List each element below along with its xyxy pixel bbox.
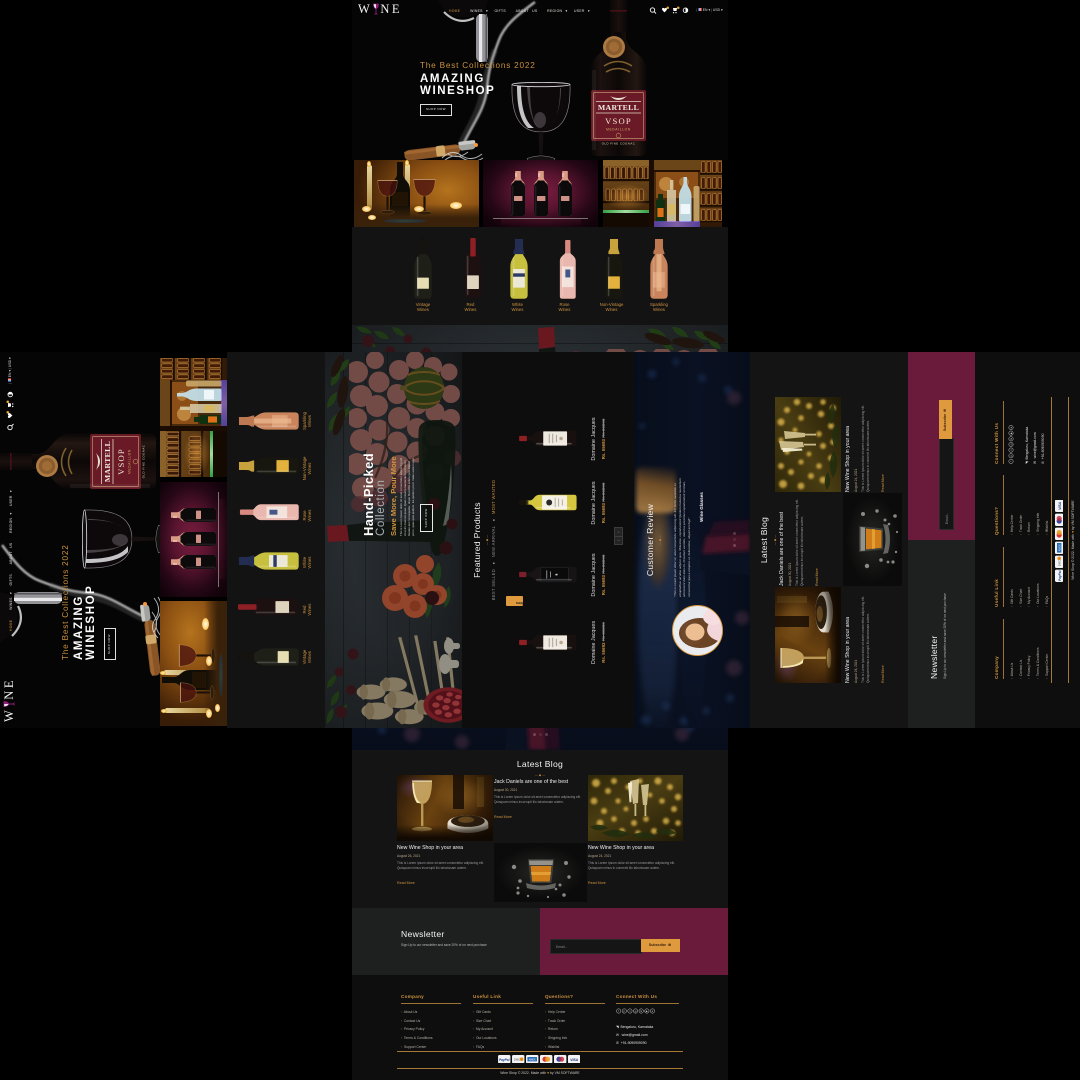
svg-text:G: G (1010, 438, 1013, 440)
svg-text:DISC: DISC (1058, 560, 1062, 566)
svg-text:MARTELL: MARTELL (598, 103, 639, 112)
svg-text:▶: ▶ (1010, 432, 1013, 434)
svg-text:◎: ◎ (634, 1010, 636, 1013)
svg-text:ʁ: ʁ (1010, 426, 1013, 428)
svg-text:AMEX: AMEX (529, 1058, 536, 1061)
svg-text:MEDAILLON: MEDAILLON (606, 128, 631, 132)
svg-text:PayPal: PayPal (499, 1058, 510, 1062)
svg-text:MEDAILLON: MEDAILLON (128, 449, 132, 474)
svg-text:p: p (1010, 454, 1013, 456)
svg-text:ʁ: ʁ (652, 1010, 654, 1013)
svg-text:VSOP: VSOP (605, 116, 632, 126)
svg-text:□: □ (1010, 449, 1013, 451)
svg-text:G: G (640, 1010, 642, 1013)
svg-text:OLD FINE COGNAC: OLD FINE COGNAC (142, 445, 146, 478)
svg-text:♞: ♞ (555, 573, 559, 576)
svg-text:f: f (618, 1010, 619, 1013)
svg-text:p: p (624, 1010, 626, 1013)
svg-text:MARTELL: MARTELL (103, 441, 112, 482)
svg-text:DISC: DISC (514, 1058, 520, 1062)
svg-text:AMEX: AMEX (1058, 544, 1061, 551)
svg-text:◎: ◎ (1010, 443, 1013, 445)
svg-text:OLD FINE COGNAC: OLD FINE COGNAC (602, 142, 635, 146)
svg-text:VSOP: VSOP (116, 448, 126, 475)
svg-text:□: □ (629, 1010, 631, 1013)
svg-text:▶: ▶ (646, 1010, 648, 1013)
svg-text:f: f (1010, 461, 1013, 462)
svg-text:PayPal: PayPal (1058, 570, 1062, 581)
svg-text:VISA: VISA (1058, 501, 1062, 509)
svg-text:VISA: VISA (570, 1058, 578, 1062)
